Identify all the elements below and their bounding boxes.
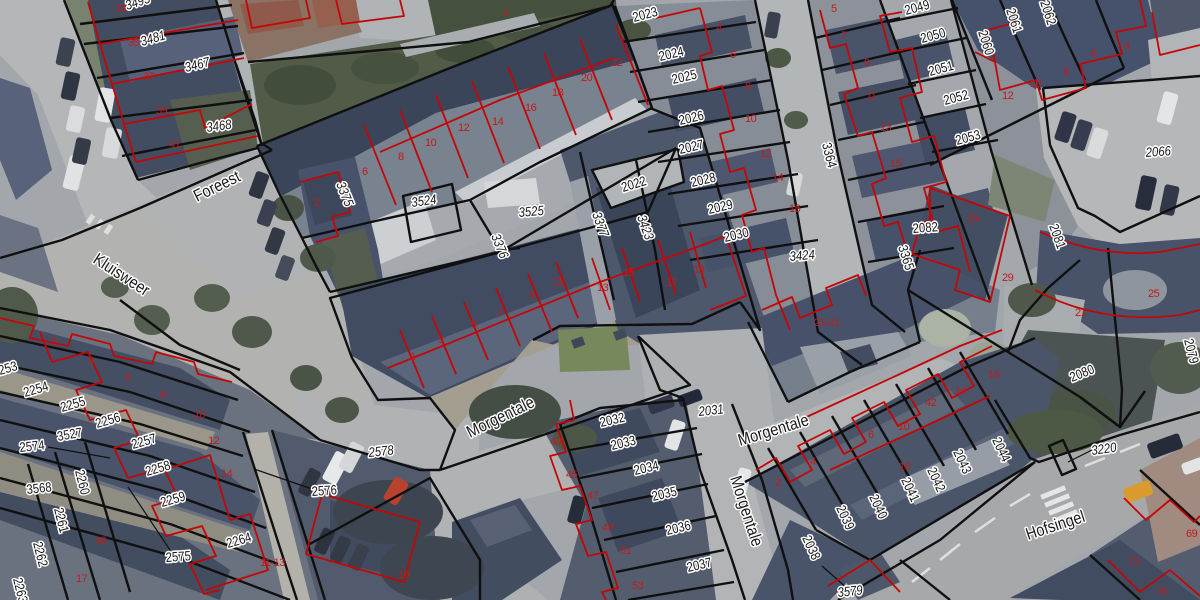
svg-text:13: 13 <box>597 282 609 294</box>
svg-text:21-01: 21-01 <box>814 317 840 329</box>
svg-text:16: 16 <box>398 569 410 581</box>
svg-text:47: 47 <box>587 490 599 502</box>
svg-text:10: 10 <box>425 137 437 149</box>
svg-text:13: 13 <box>880 122 892 134</box>
svg-text:5: 5 <box>471 319 477 331</box>
svg-text:18: 18 <box>95 535 107 547</box>
svg-text:8: 8 <box>1063 66 1069 78</box>
svg-text:11: 11 <box>553 276 564 288</box>
svg-text:3579: 3579 <box>837 583 864 600</box>
svg-text:49: 49 <box>602 522 614 534</box>
svg-text:2: 2 <box>51 336 57 348</box>
svg-text:12: 12 <box>1002 90 1014 102</box>
svg-text:2578: 2578 <box>367 443 395 461</box>
svg-text:9: 9 <box>864 57 870 69</box>
svg-text:6: 6 <box>1091 48 1097 60</box>
svg-text:8: 8 <box>398 151 404 163</box>
svg-text:25: 25 <box>1148 288 1160 300</box>
svg-text:39: 39 <box>156 105 168 117</box>
svg-text:8: 8 <box>160 389 166 401</box>
svg-text:4: 4 <box>1124 41 1130 53</box>
svg-text:4: 4 <box>810 456 816 468</box>
svg-text:2: 2 <box>775 477 781 489</box>
svg-text:6: 6 <box>868 429 874 441</box>
svg-text:20: 20 <box>581 72 593 84</box>
svg-text:2031: 2031 <box>697 402 725 420</box>
svg-text:35: 35 <box>128 37 140 49</box>
svg-text:43: 43 <box>550 436 562 448</box>
svg-text:2576: 2576 <box>311 482 337 499</box>
svg-text:2066: 2066 <box>1144 143 1171 160</box>
svg-text:6: 6 <box>362 166 368 178</box>
svg-text:31: 31 <box>968 213 980 225</box>
svg-text:14: 14 <box>955 385 967 397</box>
svg-text:12: 12 <box>760 148 772 160</box>
svg-text:3525: 3525 <box>518 203 544 220</box>
svg-text:21: 21 <box>1075 307 1087 319</box>
svg-text:7: 7 <box>841 30 847 42</box>
svg-text:6: 6 <box>125 372 131 384</box>
svg-text:12: 12 <box>208 435 220 447</box>
svg-text:14: 14 <box>772 172 784 184</box>
svg-text:14: 14 <box>221 468 233 480</box>
svg-text:2082: 2082 <box>912 219 938 236</box>
svg-text:7: 7 <box>497 308 503 320</box>
svg-text:6: 6 <box>730 49 736 61</box>
svg-text:10: 10 <box>898 421 910 433</box>
svg-text:12: 12 <box>458 122 470 134</box>
svg-text:17: 17 <box>666 277 678 289</box>
svg-text:1: 1 <box>410 351 416 363</box>
svg-text:14: 14 <box>492 116 504 128</box>
svg-text:51: 51 <box>620 545 632 557</box>
svg-text:3: 3 <box>438 334 444 346</box>
svg-text:73: 73 <box>1128 556 1140 568</box>
svg-text:16: 16 <box>789 203 801 215</box>
svg-text:15: 15 <box>623 267 635 279</box>
svg-text:22: 22 <box>611 57 623 69</box>
svg-text:53: 53 <box>632 580 644 592</box>
svg-text:19: 19 <box>693 264 705 276</box>
svg-text:2574: 2574 <box>19 438 46 456</box>
svg-text:2: 2 <box>314 197 320 209</box>
svg-text:10: 10 <box>1030 78 1042 90</box>
svg-text:15: 15 <box>890 158 902 170</box>
svg-text:16: 16 <box>899 461 911 473</box>
svg-text:37: 37 <box>143 71 155 83</box>
svg-text:41: 41 <box>169 139 181 151</box>
svg-text:4: 4 <box>88 355 94 367</box>
svg-text:8: 8 <box>745 81 751 93</box>
svg-text:16: 16 <box>988 369 1000 381</box>
svg-text:17: 17 <box>76 573 88 585</box>
svg-text:45: 45 <box>566 469 578 481</box>
svg-text:11: 11 <box>866 90 877 102</box>
svg-text:2575: 2575 <box>165 548 191 565</box>
svg-text:10: 10 <box>194 409 206 421</box>
svg-text:9: 9 <box>529 290 535 302</box>
svg-text:33: 33 <box>115 3 127 15</box>
svg-text:69: 69 <box>1186 528 1198 540</box>
svg-text:3424: 3424 <box>789 247 815 264</box>
svg-text:1: 1 <box>503 7 509 19</box>
svg-text:42: 42 <box>925 397 937 409</box>
svg-text:3568: 3568 <box>26 480 53 498</box>
svg-text:16: 16 <box>525 102 537 114</box>
svg-text:11-13: 11-13 <box>260 557 285 569</box>
svg-text:75: 75 <box>1156 586 1168 598</box>
svg-text:29: 29 <box>1002 272 1014 284</box>
svg-text:5: 5 <box>831 3 837 15</box>
svg-text:18: 18 <box>552 87 564 99</box>
svg-text:10: 10 <box>745 113 757 125</box>
svg-text:4: 4 <box>716 22 722 34</box>
